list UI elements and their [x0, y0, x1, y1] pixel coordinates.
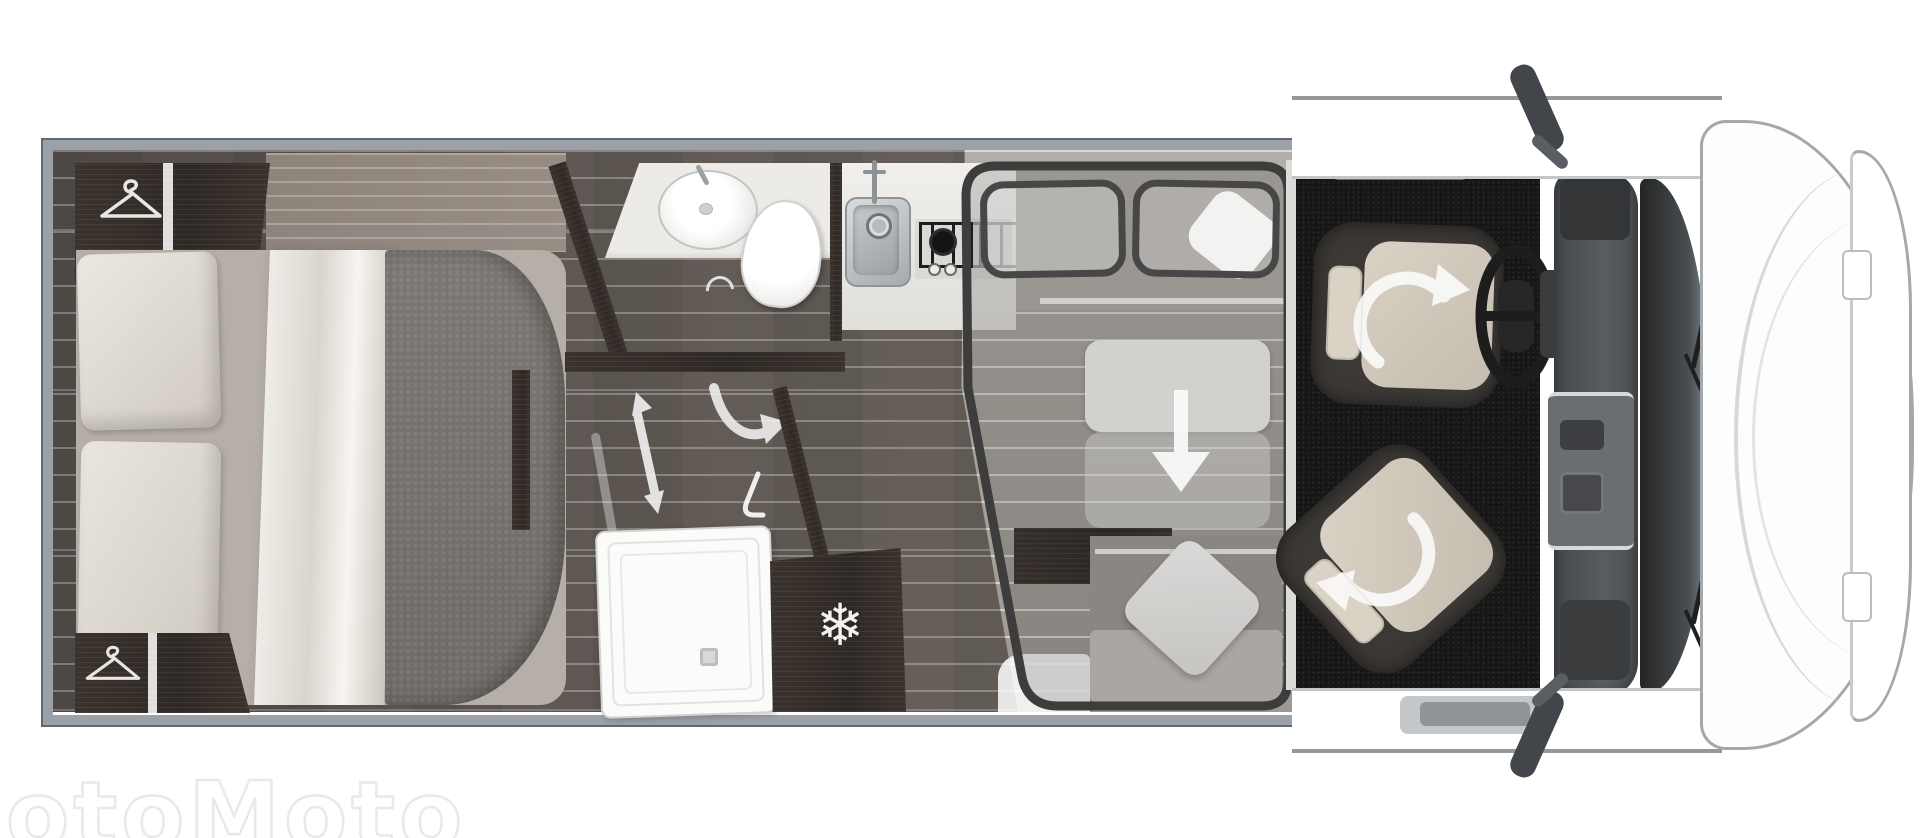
bathroom-wall-vertical — [512, 370, 530, 530]
dashboard-top-vent — [1560, 178, 1630, 240]
drop-down-bed-overlay — [955, 160, 1300, 716]
bathroom-cabinet-edge — [565, 352, 845, 372]
door-step-inner — [1420, 702, 1530, 726]
bumper-notch — [1842, 250, 1872, 300]
kitchen-wall-divider — [830, 163, 842, 341]
watermark: otoMoto — [6, 762, 466, 838]
hanger-icon — [82, 642, 144, 688]
bed-sheet-fold — [254, 250, 400, 705]
vehicle-body-top — [1292, 96, 1722, 179]
shower-tray-inner2 — [620, 550, 753, 694]
overlay-pillow-outline — [983, 183, 1123, 275]
kitchen-faucet-handle — [863, 170, 886, 174]
swivel-arrow — [1311, 493, 1450, 632]
console-control — [1560, 420, 1604, 450]
duvet — [385, 250, 565, 705]
bed-head-shelf — [266, 153, 566, 252]
hanger-icon — [96, 176, 166, 226]
dashboard-lower-vent — [1560, 600, 1630, 680]
wardrobe-bottom-divider — [148, 633, 157, 713]
center-console — [1548, 392, 1634, 550]
floorplan-canvas: ❄ — [0, 0, 1920, 838]
front-bumper — [1850, 150, 1912, 722]
hob-knob — [928, 263, 941, 276]
cab-wall-sliver — [1286, 160, 1296, 690]
console-control — [1560, 472, 1604, 514]
snowflake-icon: ❄ — [800, 596, 880, 654]
hob-burner — [932, 231, 954, 253]
kitchen-faucet — [872, 160, 877, 204]
sink-drain — [866, 213, 892, 239]
washbasin-drain — [699, 203, 713, 215]
shower-drain — [700, 648, 718, 666]
sliding-door-arrow — [622, 390, 674, 516]
door-hook-icon — [736, 470, 772, 520]
overlay-pillow-outline — [1135, 183, 1277, 275]
swivel-arrow — [1344, 252, 1472, 380]
drop-down-arrow — [1150, 390, 1212, 495]
pillow — [77, 251, 222, 431]
bumper-notch — [1842, 572, 1872, 622]
